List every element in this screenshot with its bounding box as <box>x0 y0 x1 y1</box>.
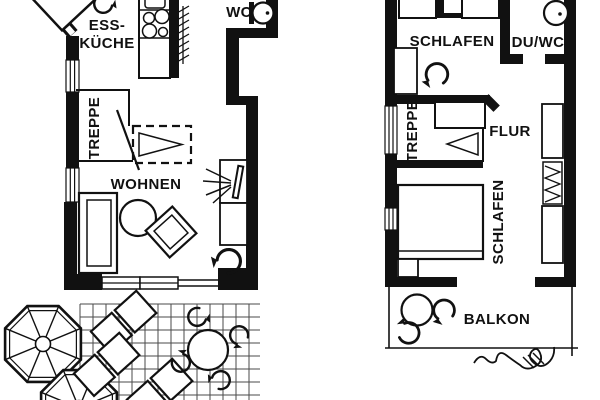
plant-squiggle-icon <box>474 347 554 369</box>
bedroom-top-label: SCHLAFEN <box>410 33 495 50</box>
stair-landing <box>435 102 485 128</box>
upper-floor-plan: SCHLAFEN DU/WC TREPPE FLUR SCHLAFEN BALK… <box>385 0 578 369</box>
wardrobe-hangers-icon <box>543 162 562 204</box>
balcony-table <box>402 295 433 326</box>
stair-direction-triangle <box>447 133 478 155</box>
kitchen-label-line2: KÜCHE <box>79 35 134 52</box>
wardrobe <box>542 206 563 263</box>
shower-icon <box>544 1 568 25</box>
lounge-chair <box>127 359 192 400</box>
hall-label: FLUR <box>489 123 531 140</box>
stairs-label: TREPPE <box>404 100 421 162</box>
left-exterior-wall <box>385 0 397 285</box>
right-exterior-wall <box>226 0 278 290</box>
wardrobe <box>394 48 417 94</box>
door-swing-arrow-icon <box>421 61 450 90</box>
window-icon <box>385 106 397 154</box>
closet <box>542 104 563 158</box>
wc-label: WC <box>226 4 252 21</box>
bedroom-bottom-label: SCHLAFEN <box>490 180 507 265</box>
double-bed <box>398 185 483 277</box>
stairs-label: TREPPE <box>86 97 103 159</box>
toilet-icon <box>249 2 274 24</box>
window-icon <box>66 168 79 202</box>
floor-plan-svg: ESS- KÜCHE WC TREPPE WOHNEN <box>0 0 600 400</box>
living-label: WOHNEN <box>111 176 182 193</box>
shower-wc-label: DU/WC <box>512 34 565 51</box>
chair-arrow-icon <box>91 0 120 18</box>
ground-floor-plan: ESS- KÜCHE WC TREPPE WOHNEN <box>5 0 278 400</box>
single-bed <box>399 0 436 18</box>
kitchen-label-line1: ESS- <box>89 17 126 34</box>
chair-arrow-icon <box>429 298 456 326</box>
sofa <box>79 193 117 273</box>
kitchen-counter <box>139 0 179 78</box>
single-bed <box>462 0 499 18</box>
floor-plan-drawing: ESS- KÜCHE WC TREPPE WOHNEN <box>0 0 600 400</box>
window-icon <box>385 208 397 230</box>
window-icon <box>140 277 178 289</box>
right-exterior-wall <box>564 0 576 285</box>
patio-table <box>188 330 228 370</box>
window-icon <box>66 60 79 92</box>
nightstand <box>398 259 418 277</box>
sink-icon <box>145 0 165 8</box>
balcony-label: BALKON <box>464 311 531 328</box>
window-icon <box>102 277 140 289</box>
